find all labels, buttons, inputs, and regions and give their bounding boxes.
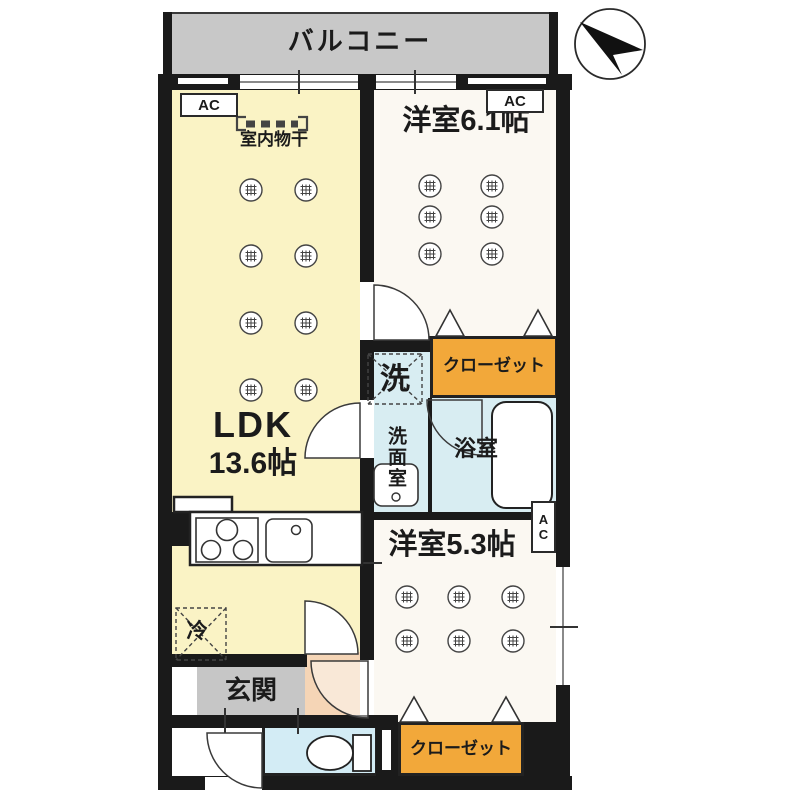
washroom-label: 洗面室: [381, 404, 405, 510]
indoor-laundry-label: 室内物干: [226, 131, 322, 149]
ac-label: AC: [504, 93, 526, 110]
closet-top-label: クローゼット: [432, 357, 556, 375]
closet-bottom-label: クローゼット: [400, 740, 522, 758]
floor-plan: バルコニー 洋室6.1帖 LDK 13.6帖 洋室5.3帖 浴室 クローゼット …: [0, 0, 800, 800]
ac-unit-bedroom-2: AC: [531, 501, 556, 553]
sink: [266, 519, 312, 562]
ac-unit-bedroom-1: AC: [486, 89, 544, 113]
toilet-fixture: [307, 735, 371, 771]
laundry-pole-symbol: [237, 117, 307, 130]
entrance-label: 玄関: [203, 677, 299, 704]
fridge-label: 冷: [172, 621, 222, 643]
ac-label: AC: [536, 512, 551, 542]
bathroom-label: 浴室: [430, 437, 522, 460]
ldk-name-label: LDK: [173, 406, 333, 444]
washer-label: 洗: [369, 364, 421, 396]
kitchen-fixtures: [174, 497, 362, 565]
bedroom-2-label: 洋室5.3帖: [366, 530, 538, 560]
ac-unit-ldk: AC: [180, 93, 238, 117]
ldk-size-label: 13.6帖: [173, 448, 333, 480]
ac-label: AC: [198, 97, 220, 114]
balcony-label: バルコニー: [260, 28, 460, 55]
north-arrow-icon: [575, 9, 645, 79]
